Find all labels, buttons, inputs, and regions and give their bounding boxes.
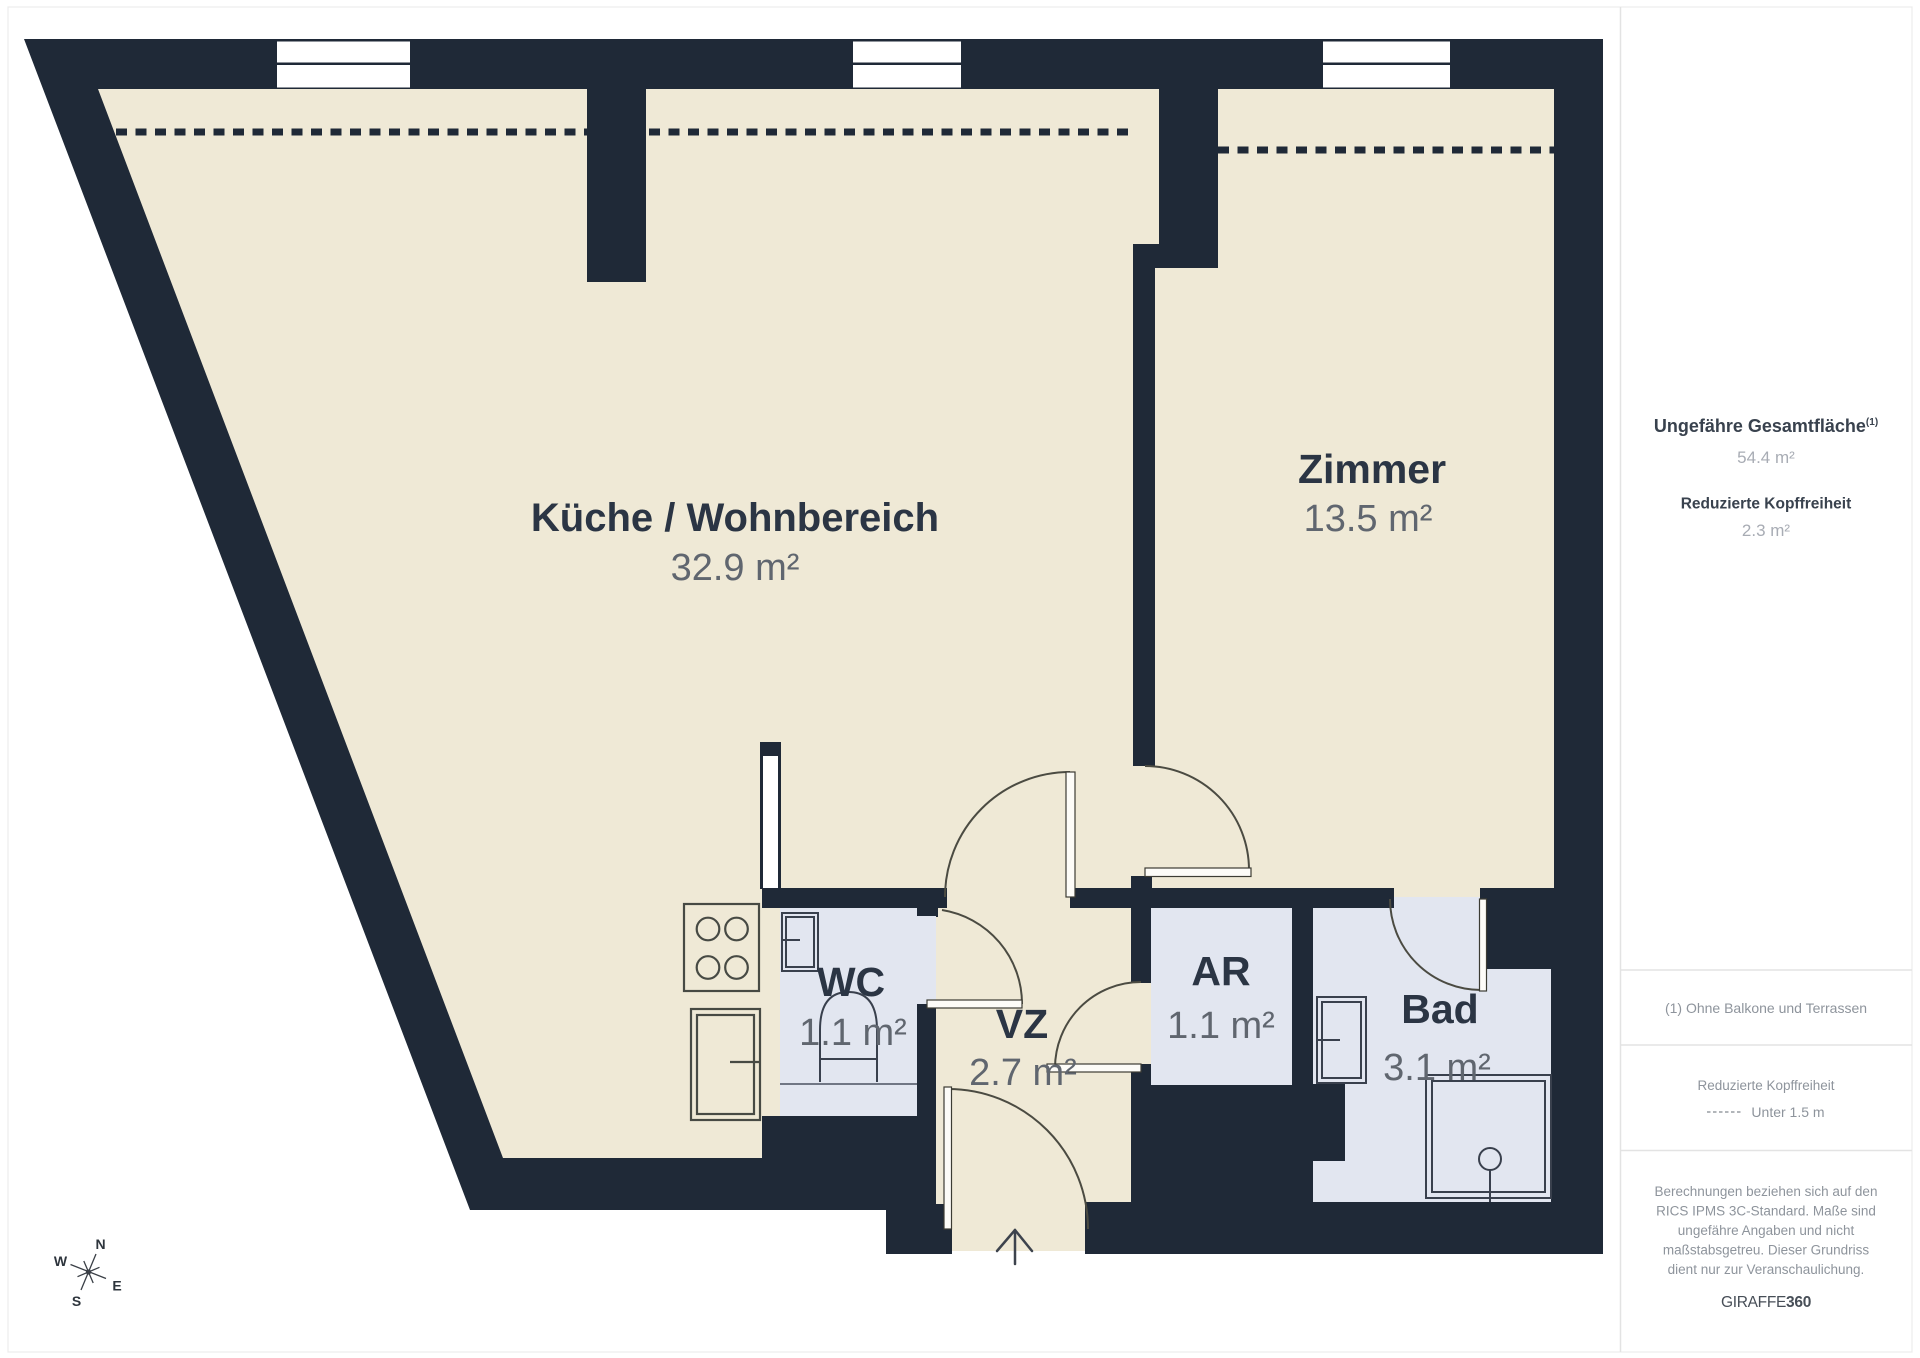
svg-text:(1) Ohne Balkone und Terrassen: (1) Ohne Balkone und Terrassen xyxy=(1665,1000,1867,1016)
svg-text:AR: AR xyxy=(1191,948,1250,994)
svg-text:RICS IPMS 3C-Standard. Maße si: RICS IPMS 3C-Standard. Maße sind xyxy=(1656,1204,1876,1219)
svg-text:3.1 m²: 3.1 m² xyxy=(1383,1047,1491,1089)
svg-text:Reduzierte Kopffreiheit: Reduzierte Kopffreiheit xyxy=(1681,496,1852,513)
svg-text:N: N xyxy=(95,1236,105,1252)
svg-text:Ungefähre Gesamtfläche(1): Ungefähre Gesamtfläche(1) xyxy=(1654,416,1878,436)
svg-text:Zimmer: Zimmer xyxy=(1298,446,1446,492)
svg-text:13.5 m²: 13.5 m² xyxy=(1304,498,1433,540)
svg-text:VZ: VZ xyxy=(996,1001,1048,1047)
svg-text:Küche / Wohnbereich: Küche / Wohnbereich xyxy=(531,496,939,540)
svg-text:2.7 m²: 2.7 m² xyxy=(969,1052,1077,1094)
svg-text:Unter 1.5 m: Unter 1.5 m xyxy=(1751,1104,1824,1120)
svg-text:Bad: Bad xyxy=(1401,986,1478,1032)
svg-text:maßstabsgetreu. Dieser Grundri: maßstabsgetreu. Dieser Grundriss xyxy=(1663,1243,1870,1258)
svg-text:32.9 m²: 32.9 m² xyxy=(671,547,800,589)
svg-text:54.4 m²: 54.4 m² xyxy=(1737,448,1795,467)
svg-text:2.3 m²: 2.3 m² xyxy=(1742,521,1791,540)
svg-text:WC: WC xyxy=(817,959,885,1005)
svg-text:S: S xyxy=(72,1293,81,1309)
svg-text:dient nur zur Veranschaulichun: dient nur zur Veranschaulichung. xyxy=(1668,1262,1865,1277)
svg-text:ungefähre Angaben und nicht: ungefähre Angaben und nicht xyxy=(1678,1223,1855,1238)
svg-text:E: E xyxy=(112,1278,121,1294)
svg-text:1.1 m²: 1.1 m² xyxy=(799,1012,907,1054)
svg-text:Berechnungen beziehen sich auf: Berechnungen beziehen sich auf den xyxy=(1655,1184,1878,1199)
svg-text:Reduzierte Kopffreiheit: Reduzierte Kopffreiheit xyxy=(1697,1078,1834,1093)
svg-text:1.1 m²: 1.1 m² xyxy=(1167,1005,1275,1047)
svg-text:W: W xyxy=(54,1253,68,1269)
svg-text:GIRAFFE360: GIRAFFE360 xyxy=(1721,1294,1811,1311)
